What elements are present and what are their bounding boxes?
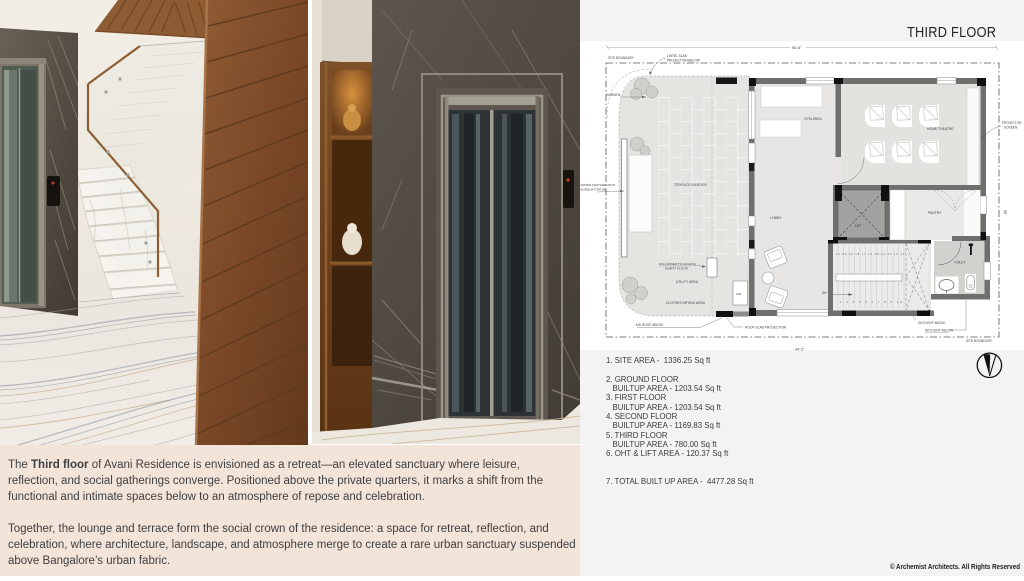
svg-text:SCREEN: SCREEN <box>1004 126 1018 130</box>
svg-text:44'-2": 44'-2" <box>795 348 805 352</box>
svg-text:MUMTY FLOOR: MUMTY FLOOR <box>665 267 689 271</box>
svg-text:DN: DN <box>822 291 827 295</box>
svg-text:MS LADDER TO ACCESS: MS LADDER TO ACCESS <box>659 262 696 266</box>
svg-text:GYM AREA: GYM AREA <box>804 117 822 121</box>
svg-text:TERRACE/GARDEN: TERRACE/GARDEN <box>674 183 707 187</box>
svg-text:PROJECTOR: PROJECTOR <box>1002 121 1022 125</box>
svg-text:WM: WM <box>736 292 742 296</box>
svg-text:SITE BOUNDARY: SITE BOUNDARY <box>966 339 993 343</box>
svg-text:BUDDHA STATUE: BUDDHA STATUE <box>581 188 607 192</box>
svg-text:58': 58' <box>1003 210 1007 215</box>
svg-text:HOME THEATRE: HOME THEATRE <box>927 127 954 131</box>
svg-text:LIFT: LIFT <box>855 224 862 228</box>
svg-text:LOBBY: LOBBY <box>770 216 782 220</box>
svg-text:SKYLIGHT BELOW: SKYLIGHT BELOW <box>925 329 953 333</box>
svg-text:SITE BOUNDARY: SITE BOUNDARY <box>608 56 635 60</box>
svg-text:WATER FEATURE WITH: WATER FEATURE WITH <box>581 183 616 187</box>
svg-text:56'-8": 56'-8" <box>792 46 802 50</box>
svg-text:PANTRY: PANTRY <box>928 211 942 215</box>
svg-text:PROJECTION BELOW: PROJECTION BELOW <box>667 59 700 63</box>
svg-text:SKYLIGHT ABOVE: SKYLIGHT ABOVE <box>918 321 945 325</box>
svg-text:UTILITY AREA: UTILITY AREA <box>676 280 699 284</box>
svg-text:CLOTHES DRYING AREA: CLOTHES DRYING AREA <box>666 301 706 305</box>
svg-text:GARDEN: GARDEN <box>606 93 621 97</box>
svg-text:TOILET: TOILET <box>954 261 965 265</box>
svg-text:MS ROOF ABOVE: MS ROOF ABOVE <box>636 323 664 327</box>
svg-text:ROOF SLAB PROJECTION: ROOF SLAB PROJECTION <box>745 326 787 330</box>
svg-text:LINTEL SLAB: LINTEL SLAB <box>667 54 687 58</box>
svg-text:21 20 19 18 17 16 15 14 13 12: 21 20 19 18 17 16 15 14 13 12 11 <box>836 252 905 256</box>
